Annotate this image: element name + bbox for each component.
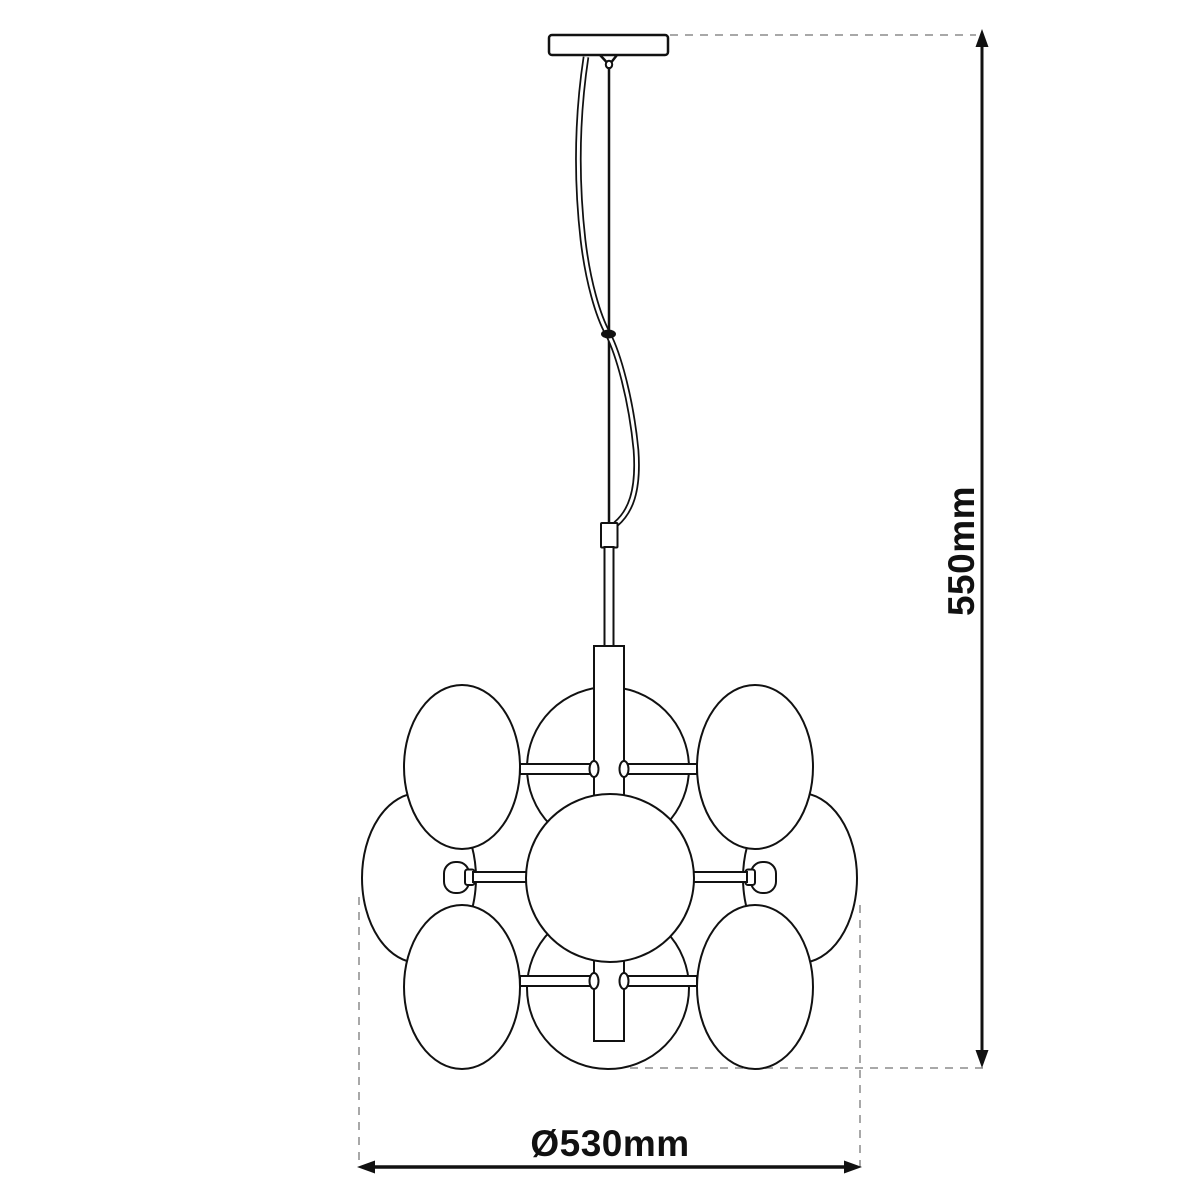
dimension-drawing-canvas: 550mm Ø530mm	[0, 0, 1200, 1200]
glass-disc-top-right	[697, 685, 813, 849]
ceiling-canopy	[549, 35, 668, 55]
lower-right-arm-ring	[620, 973, 629, 989]
power-cord-core	[578, 57, 636, 537]
glass-disc-top-left	[404, 685, 520, 849]
down-arrowhead-icon	[976, 1050, 989, 1068]
power-cord	[578, 57, 636, 537]
left-arrowhead-icon	[357, 1161, 375, 1174]
lower-left-arm	[520, 976, 594, 986]
lower-right-arm	[626, 976, 697, 986]
cord-grip	[601, 523, 618, 548]
lower-left-arm-ring	[590, 973, 599, 989]
up-arrowhead-icon	[976, 29, 989, 47]
pendant-lamp-dimension-diagram: 550mm Ø530mm	[0, 0, 1200, 1200]
pendant-lamp-fixture	[362, 35, 857, 1069]
height-dimension-label: 550mm	[941, 486, 982, 616]
upper-right-arm-ring	[620, 761, 629, 777]
glass-globe-center-front	[526, 794, 694, 962]
cable-clamp	[601, 330, 616, 339]
middle-right-arm	[690, 872, 747, 882]
upper-left-arm-ring	[590, 761, 599, 777]
glass-disc-bottom-left	[404, 905, 520, 1069]
glass-disc-bottom-right	[697, 905, 813, 1069]
middle-left-arm	[473, 872, 530, 882]
upper-right-arm	[626, 764, 697, 774]
diameter-dimension-label: Ø530mm	[530, 1123, 689, 1164]
drop-rod	[605, 547, 614, 647]
upper-left-arm	[520, 764, 594, 774]
